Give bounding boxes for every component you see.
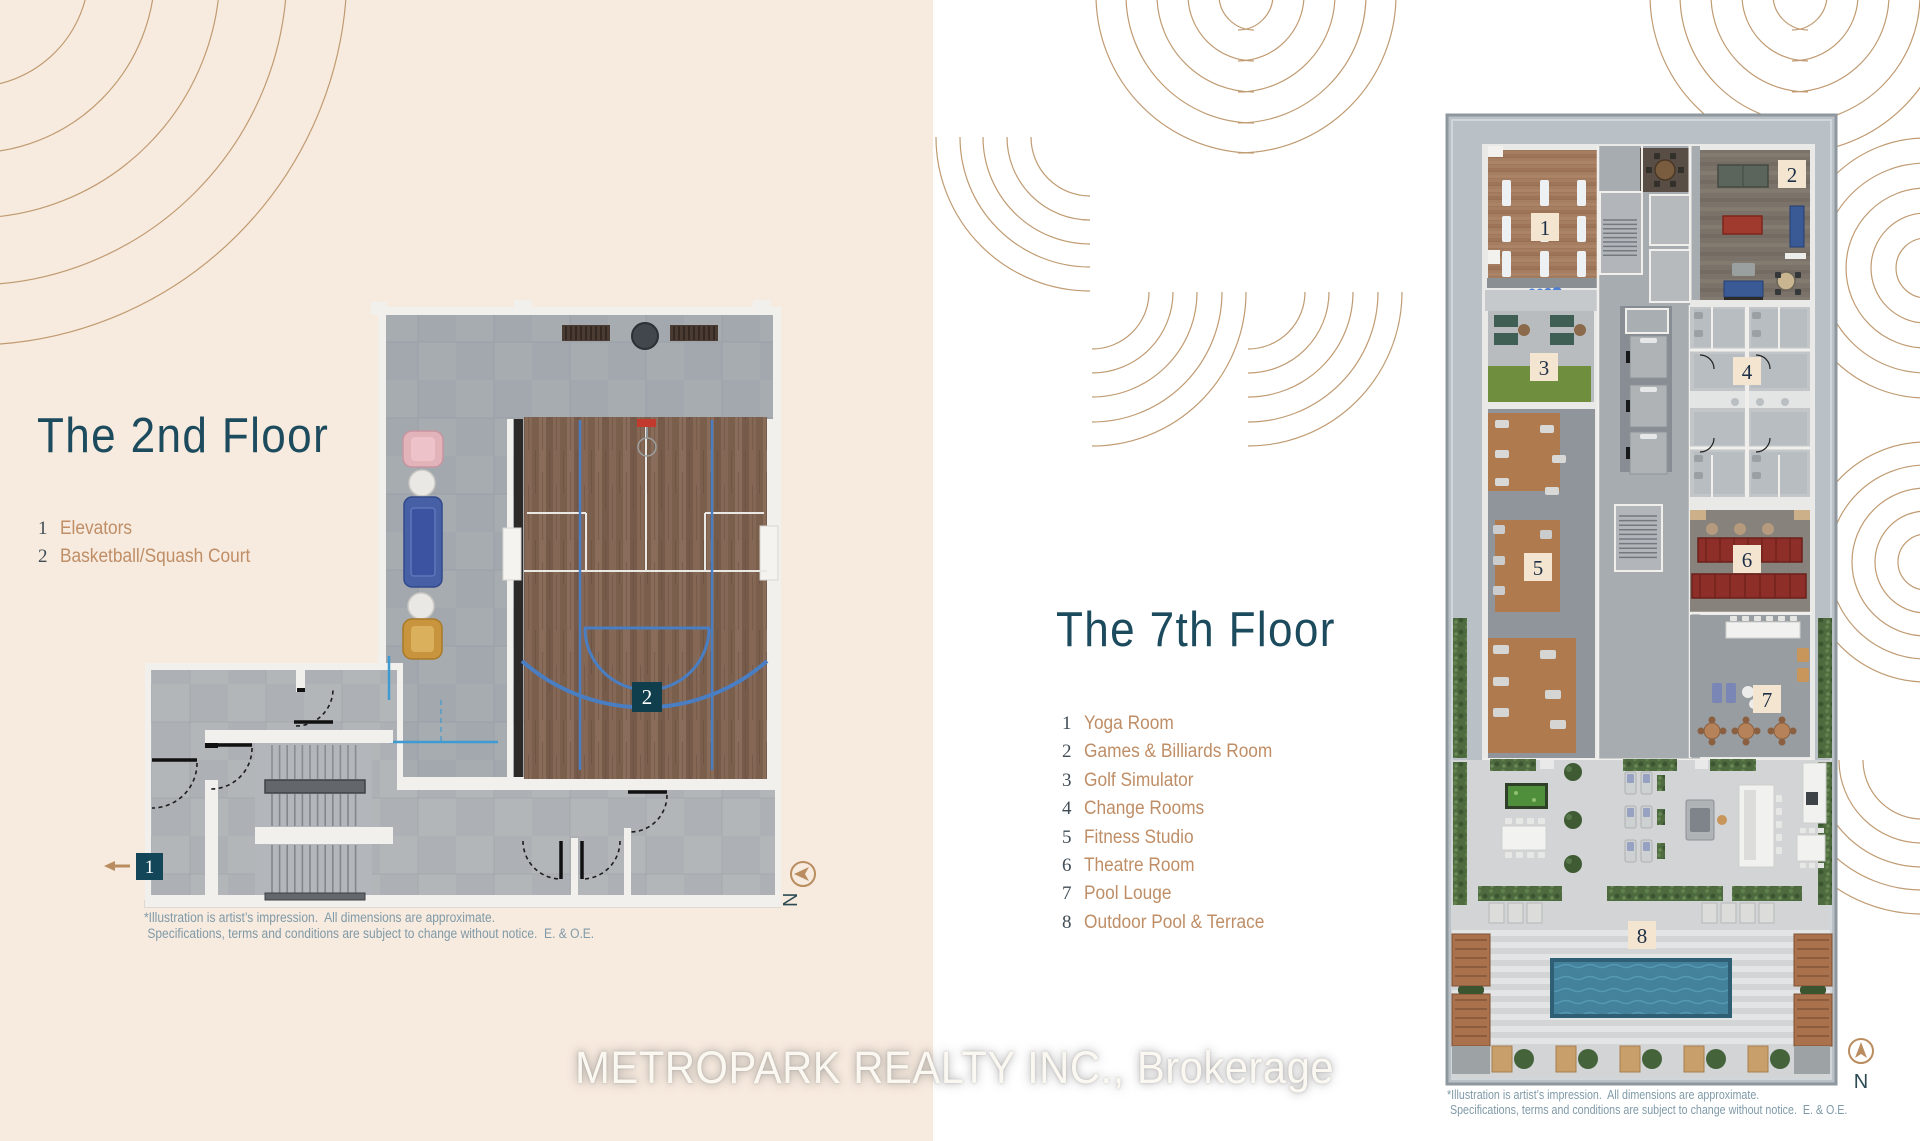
svg-text:7: 7 <box>1762 688 1773 712</box>
svg-text:2: 2 <box>1787 163 1798 187</box>
svg-text:N: N <box>780 893 802 907</box>
svg-text:1: 1 <box>145 857 155 878</box>
svg-text:6: 6 <box>1742 548 1753 572</box>
svg-text:5: 5 <box>1533 556 1544 580</box>
svg-text:3: 3 <box>1539 356 1550 380</box>
svg-text:N: N <box>1854 1071 1868 1093</box>
svg-text:8: 8 <box>1637 924 1648 948</box>
svg-text:2: 2 <box>642 685 653 709</box>
svg-text:1: 1 <box>1540 216 1551 240</box>
svg-text:4: 4 <box>1742 360 1753 384</box>
